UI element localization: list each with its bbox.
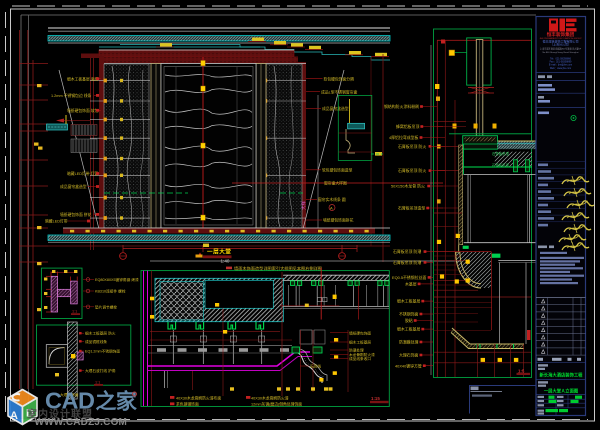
svg-text:（上海分公司）: （上海分公司） (550, 42, 571, 47)
svg-text:一层大堂: 一层大堂 (207, 247, 231, 255)
svg-text:1:15: 1:15 (371, 396, 380, 401)
svg-text:成品镜框线条: 成品镜框线条 (85, 339, 107, 344)
svg-text:大样: 大样 (300, 201, 307, 210)
svg-text:软包硬包饰面造型: 软包硬包饰面造型 (322, 167, 353, 172)
svg-text:细木工板基层 面层: 细木工板基层 面层 (67, 76, 99, 81)
svg-text:50X150木龙骨 防火: 50X150木龙骨 防火 (391, 184, 425, 189)
svg-text:石膏板吊顶: 石膏板吊顶 (492, 151, 510, 156)
svg-text:石膏线: 石膏线 (310, 364, 321, 369)
svg-text:大理石饰面: 大理石饰面 (399, 353, 419, 358)
svg-text:胶粘: 胶粘 (405, 318, 413, 323)
svg-text:成品线条收口: 成品线条收口 (349, 356, 371, 361)
svg-text:细木工板基层: 细木工板基层 (397, 299, 420, 304)
svg-text:暗藏LED灯带: 暗藏LED灯带 (45, 219, 68, 224)
svg-text:40X30木龙骨刷防火漆布面: 40X30木龙骨刷防火漆布面 (176, 395, 221, 400)
svg-text:成品L型不锈钢窗帘盒: 成品L型不锈钢窗帘盒 (321, 89, 357, 94)
svg-text:EQ0.5不锈钢拉丝面: EQ0.5不锈钢拉丝面 (392, 275, 426, 280)
svg-text:软包硬包饰面分隔: 软包硬包饰面分隔 (324, 76, 355, 81)
svg-text:成品窗帘盒造型: 成品窗帘盒造型 (322, 106, 349, 111)
svg-text:垫片调节螺栓: 垫片调节螺栓 (95, 304, 117, 309)
svg-text:茶色镜钢饰面: 茶色镜钢饰面 (176, 402, 199, 407)
svg-text:墙纸硬包饰面: 墙纸硬包饰面 (349, 330, 371, 335)
svg-text:4厚铝拉弯成型板: 4厚铝拉弯成型板 (389, 135, 419, 140)
svg-text:12mm灰镜(磨边)倒角处理饰面: 12mm灰镜(磨边)倒角处理饰面 (251, 402, 302, 407)
svg-text:钢结构防火涂料粉刷: 钢结构防火涂料粉刷 (384, 104, 419, 109)
svg-text:防潮处理: 防潮处理 (349, 348, 364, 353)
svg-text:A: A (330, 206, 333, 211)
svg-text:细木工板基层: 细木工板基层 (397, 327, 420, 332)
svg-text:墙纸硬包饰面 软包: 墙纸硬包饰面 软包 (67, 108, 99, 113)
svg-text:40X40镀锌方管: 40X40镀锌方管 (395, 363, 422, 368)
svg-text:防潮膜处理: 防潮膜处理 (399, 340, 419, 345)
svg-text:No.800 ShangCheng Road Shangha: No.800 ShangCheng Road Shanghai (542, 52, 579, 54)
svg-text:1:1: 1:1 (72, 310, 77, 314)
svg-text:石膏板吊顶 防潮: 石膏板吊顶 防潮 (393, 260, 421, 265)
svg-text:1:40: 1:40 (221, 258, 230, 263)
svg-text:1:5: 1:5 (518, 368, 525, 373)
svg-text:恒丰装饰集团: 恒丰装饰集团 (547, 31, 575, 38)
svg-text:石膏板吊顶 防潮: 石膏板吊顶 防潮 (393, 249, 421, 254)
svg-text:墙纸硬包饰面 拼花: 墙纸硬包饰面 拼花 (60, 212, 92, 217)
svg-text:墙纸硬包饰面拼花: 墙纸硬包饰面拼花 (323, 218, 354, 223)
svg-text:不锈钢饰面: 不锈钢饰面 (399, 312, 419, 317)
svg-text:细木工板基层 防火: 细木工板基层 防火 (85, 331, 116, 336)
svg-text:KB310连接件 螺栓: KB310连接件 螺栓 (95, 289, 126, 294)
svg-text:40X30木龙骨刷防火漆: 40X30木龙骨刷防火漆 (251, 395, 289, 400)
svg-text:窗帘实木线条 圆: 窗帘实木线条 圆 (318, 197, 346, 202)
svg-text:Web：www.jhe.com: Web：www.jhe.com (550, 67, 571, 70)
svg-text:石膏板吊顶造型: 石膏板吊顶造型 (398, 206, 425, 211)
svg-text:大理石波打线 护角: 大理石波打线 护角 (85, 368, 116, 373)
svg-text:细木工板基层: 细木工板基层 (349, 340, 371, 345)
svg-text:蜂窝铝板吊顶: 蜂窝铝板吊顶 (396, 124, 419, 129)
svg-text:A: A (10, 410, 18, 422)
svg-text:石膏板吊顶 防火: 石膏板吊顶 防火 (398, 168, 426, 173)
svg-text:新长海大酒店装饰工程: 新长海大酒店装饰工程 (540, 372, 584, 379)
svg-text:1:1: 1:1 (95, 380, 100, 384)
svg-text:暗藏LED灯带 灯管: 暗藏LED灯带 灯管 (67, 171, 98, 176)
svg-text:1.2mm 不锈钢包边 线条: 1.2mm 不锈钢包边 线条 (51, 93, 91, 98)
svg-text:窗帘盒大样图: 窗帘盒大样图 (324, 180, 347, 185)
svg-text:WWW.CADZJ.COM: WWW.CADZJ.COM (35, 417, 128, 428)
svg-text:EQ80X80X5镀锌角钢 烤漆: EQ80X80X5镀锌角钢 烤漆 (95, 277, 139, 282)
svg-text:木基层: 木基层 (405, 282, 417, 287)
svg-text:成品窗帘盒造型: 成品窗帘盒造型 (60, 184, 87, 189)
svg-text:一层大堂Ａ立面图: 一层大堂Ａ立面图 (544, 388, 579, 395)
svg-text:石膏板吊顶 防火: 石膏板吊顶 防火 (398, 144, 426, 149)
svg-text:EQ1.2mm不锈钢饰面: EQ1.2mm不锈钢饰面 (85, 349, 120, 354)
